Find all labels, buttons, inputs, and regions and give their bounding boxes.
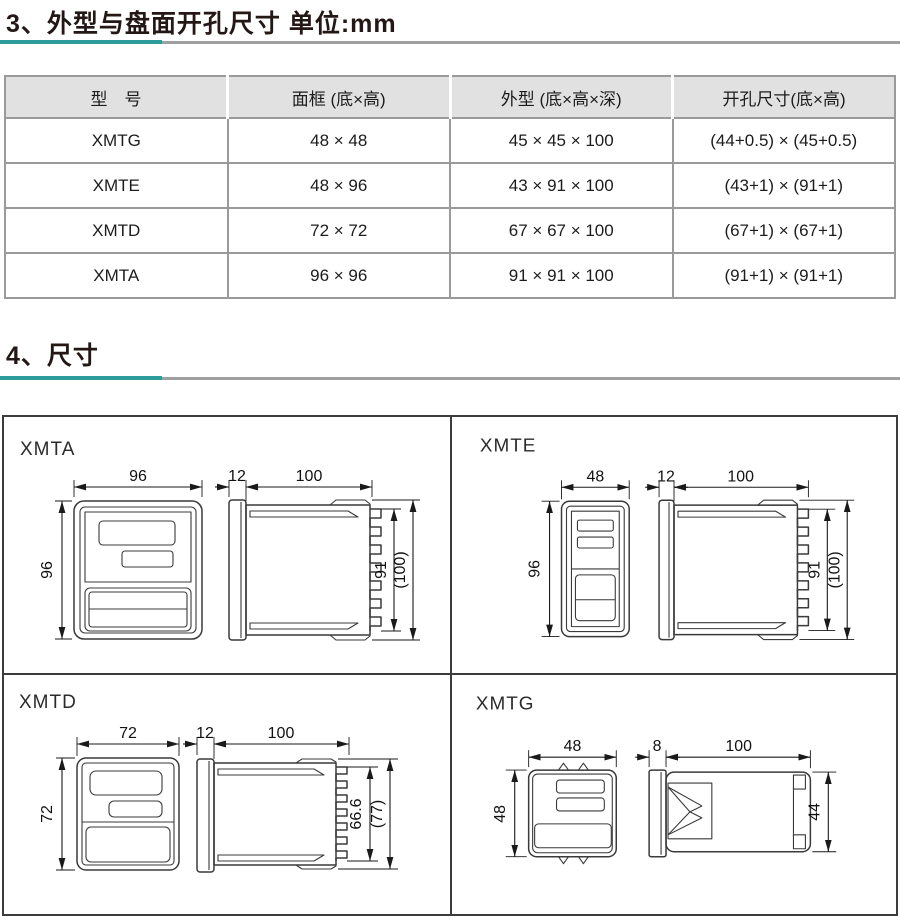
cell-outline: 45 × 45 × 100 — [450, 118, 673, 163]
cell-outline: 43 × 91 × 100 — [450, 163, 673, 208]
xmtd-diagram: XMTD 72 — [4, 675, 450, 914]
underline-teal-segment — [0, 40, 162, 44]
model-label: XMTD — [19, 692, 77, 713]
xmta-dim-bezel-depth: 12 — [215, 468, 260, 501]
xmtg-dim-body-depth: 100 — [666, 738, 810, 768]
xmtd-dim-bezel-depth: 12 — [183, 725, 228, 759]
cell-outline: 91 × 91 × 100 — [450, 253, 673, 298]
model-label: XMTE — [480, 435, 537, 456]
xmta-dim-front-width: 96 — [74, 468, 202, 497]
xmtg-front-view — [529, 763, 617, 864]
dimension-diagram-grid: XMTA — [2, 415, 898, 916]
dim-label: 12 — [196, 725, 214, 742]
xmtg-dim-front-width: 48 — [529, 738, 617, 767]
page: { "section3": { "title": "3、外型与盘面开孔尺寸 单位… — [0, 0, 900, 920]
xmtd-dim-body-depth: 100 — [214, 725, 349, 755]
xmtd-dim-front-width: 72 — [77, 725, 179, 756]
xmtg-side-view — [649, 770, 810, 857]
xmte-diagram: XMTE — [452, 417, 896, 673]
section3-underline — [0, 40, 900, 44]
dim-label: 72 — [39, 805, 56, 823]
cell-frame: 48 × 48 — [228, 118, 451, 163]
table-row: XMTG 48 × 48 45 × 45 × 100 (44+0.5) × (4… — [5, 118, 895, 163]
xmte-dim-front-width: 48 — [562, 468, 630, 499]
xmtd-front-view — [77, 758, 179, 870]
cell-model: XMTG — [5, 118, 228, 163]
underline-teal-segment — [0, 376, 162, 380]
xmte-dim-body-depth: 100 — [674, 468, 808, 497]
dim-label: 8 — [653, 738, 662, 755]
col-header-cutout: 开孔尺寸(底×高) — [673, 76, 896, 118]
cell-cutout: (44+0.5) × (45+0.5) — [673, 118, 896, 163]
xmta-dim-body-depth: 100 — [246, 468, 372, 497]
cell-model: XMTD — [5, 208, 228, 253]
dim-label: 72 — [119, 725, 137, 742]
dim-label: 100 — [727, 468, 754, 485]
quadrant-xmtg: XMTG — [452, 675, 896, 914]
cell-cutout: (91+1) × (91+1) — [673, 253, 896, 298]
spec-table: 型 号 面框 (底×高) 外型 (底×高×深) 开孔尺寸(底×高) XMTG 4… — [4, 75, 896, 299]
xmta-diagram: XMTA — [4, 417, 450, 673]
spec-table-header-row: 型 号 面框 (底×高) 外型 (底×高×深) 开孔尺寸(底×高) — [5, 76, 895, 118]
dim-label: 96 — [39, 561, 56, 579]
dim-label: 66.6 — [348, 798, 365, 829]
cell-outline: 67 × 67 × 100 — [450, 208, 673, 253]
dim-label: 100 — [268, 725, 295, 742]
xmta-dim-front-height: 96 — [39, 501, 72, 639]
underline-gray-segment — [162, 41, 900, 44]
dim-label: (100) — [392, 551, 409, 588]
dim-label: 100 — [725, 738, 752, 755]
col-header-frame: 面框 (底×高) — [228, 76, 451, 118]
dim-label: 48 — [564, 738, 582, 755]
underline-gray-segment — [162, 377, 900, 380]
cell-cutout: (43+1) × (91+1) — [673, 163, 896, 208]
section4-underline — [0, 376, 900, 380]
dim-label: 96 — [527, 560, 544, 578]
dim-label: 96 — [129, 468, 147, 485]
col-header-model: 型 号 — [5, 76, 228, 118]
dim-label: 48 — [492, 805, 509, 823]
cell-model: XMTA — [5, 253, 228, 298]
dim-label: (100) — [826, 551, 843, 588]
xmte-dim-front-height: 96 — [527, 501, 560, 636]
col-header-outline: 外型 (底×高×深) — [450, 76, 673, 118]
xmtg-diagram: XMTG — [452, 675, 896, 914]
xmta-front-view — [74, 501, 202, 639]
cell-cutout: (67+1) × (67+1) — [673, 208, 896, 253]
model-label: XMTA — [20, 439, 75, 460]
dim-label: 12 — [657, 468, 675, 485]
dim-label: 91 — [373, 561, 390, 579]
xmtd-side-view — [197, 759, 347, 872]
dim-label: 12 — [228, 468, 246, 485]
xmta-side-view — [229, 500, 381, 640]
quadrant-xmta: XMTA — [4, 417, 452, 675]
xmtd-dim-front-height: 72 — [39, 758, 75, 870]
table-row: XMTE 48 × 96 43 × 91 × 100 (43+1) × (91+… — [5, 163, 895, 208]
table-row: XMTA 96 × 96 91 × 91 × 100 (91+1) × (91+… — [5, 253, 895, 298]
section4-title: 4、尺寸 — [6, 336, 99, 372]
xmte-side-view — [659, 500, 808, 639]
xmte-dim-bezel-depth: 12 — [645, 468, 688, 501]
xmte-front-view — [562, 501, 630, 636]
dim-label: 48 — [587, 468, 605, 485]
dim-label: (77) — [369, 800, 386, 828]
xmtg-dim-bezel-depth: 8 — [635, 738, 680, 767]
section3-title: 3、外型与盘面开孔尺寸 单位:mm — [6, 4, 397, 40]
dim-label: 100 — [296, 468, 323, 485]
table-row: XMTD 72 × 72 67 × 67 × 100 (67+1) × (67+… — [5, 208, 895, 253]
dim-label: 44 — [806, 803, 823, 821]
model-label: XMTG — [476, 693, 535, 714]
cell-frame: 96 × 96 — [228, 253, 451, 298]
quadrant-xmtd: XMTD 72 — [4, 675, 452, 914]
cell-frame: 72 × 72 — [228, 208, 451, 253]
cell-model: XMTE — [5, 163, 228, 208]
dim-label: 91 — [806, 561, 823, 579]
cell-frame: 48 × 96 — [228, 163, 451, 208]
quadrant-xmte: XMTE — [452, 417, 896, 675]
xmtg-dim-front-height: 48 — [492, 770, 527, 857]
